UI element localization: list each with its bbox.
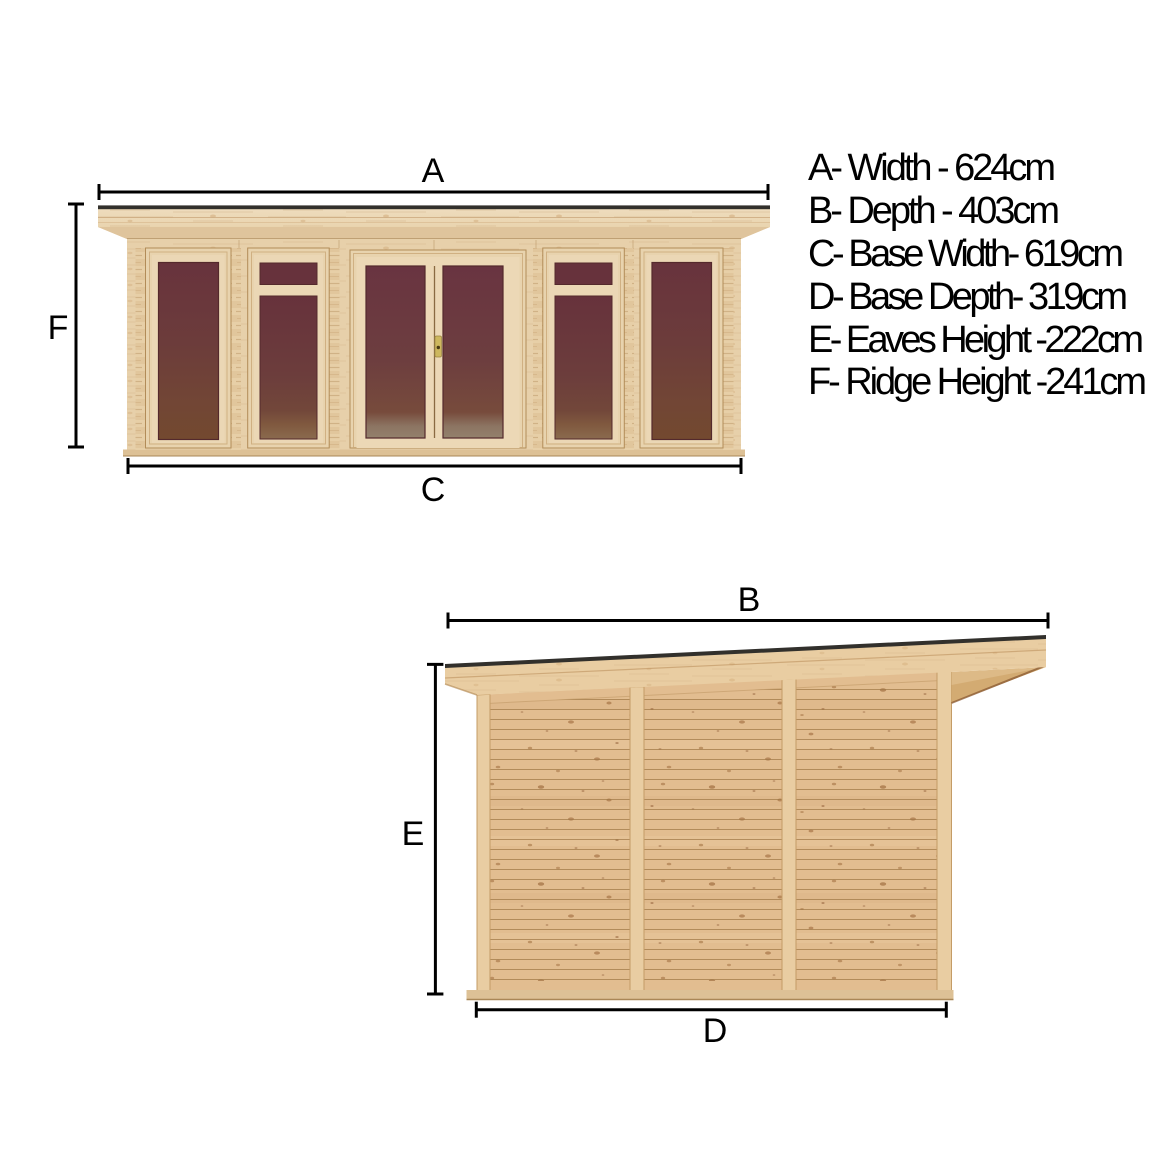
svg-text:D: D: [703, 1012, 728, 1050]
svg-text:B- Depth - 403cm: B- Depth - 403cm: [808, 190, 1060, 232]
svg-text:E: E: [402, 815, 425, 853]
svg-text:E- Eaves Height -222cm: E- Eaves Height -222cm: [808, 319, 1144, 361]
svg-text:F: F: [48, 309, 69, 347]
svg-text:C- Base Width- 619cm: C- Base Width- 619cm: [808, 233, 1124, 275]
svg-text:B: B: [738, 581, 761, 619]
svg-text:A- Width - 624cm: A- Width - 624cm: [808, 147, 1056, 189]
svg-text:C: C: [421, 471, 446, 509]
svg-text:F- Ridge Height -241cm: F- Ridge Height -241cm: [808, 361, 1147, 403]
svg-text:D- Base Depth- 319cm: D- Base Depth- 319cm: [808, 276, 1128, 318]
svg-text:A: A: [422, 152, 445, 190]
